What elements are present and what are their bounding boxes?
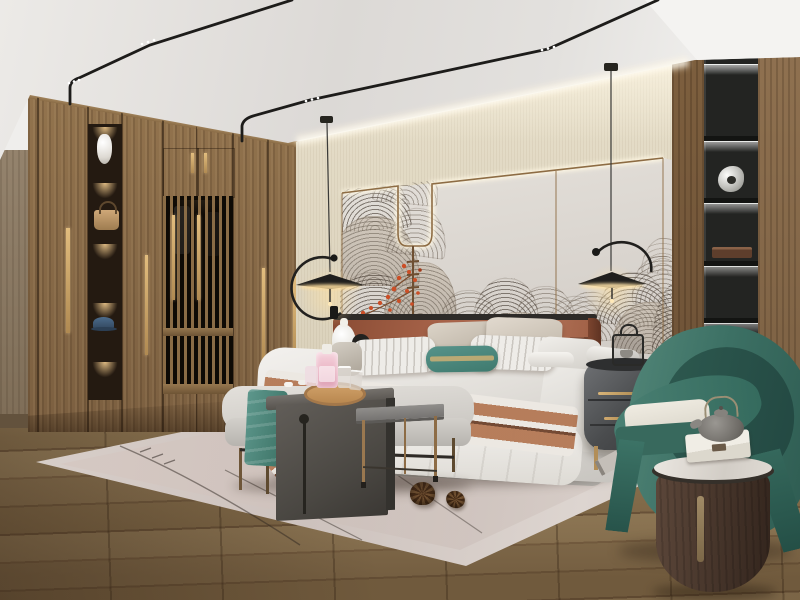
sculpture-hole	[727, 176, 736, 184]
wood-box	[712, 247, 752, 258]
handbag-handle-icon	[99, 201, 117, 214]
left-wall-panel	[0, 150, 30, 428]
lattice-handle	[172, 215, 175, 300]
gourd-lamp-neck	[340, 318, 348, 327]
blue-cap-brim	[91, 327, 117, 331]
headboard-top-rail	[333, 314, 597, 320]
metal-table-foot	[361, 482, 366, 488]
cabinet-handle	[204, 153, 207, 173]
perfume-label	[319, 366, 335, 382]
metal-table-foot	[433, 476, 438, 482]
metal-table-leg	[404, 418, 406, 474]
drum-table-notch	[697, 496, 704, 562]
striped-pillow-left	[351, 336, 437, 376]
bench-tag	[284, 382, 293, 387]
shelf-led	[704, 141, 760, 152]
gift-box-label	[712, 443, 727, 451]
lantern-handle	[620, 324, 638, 336]
left-wall-baseboard	[0, 414, 30, 428]
metal-table-leg	[434, 416, 437, 478]
lattice-bottom-rail	[163, 384, 233, 394]
wardrobe-handle	[262, 268, 265, 364]
lattice-handle	[197, 215, 200, 300]
shelf-led	[704, 266, 760, 277]
white-vase	[97, 134, 112, 164]
wardrobe-handle	[145, 255, 148, 355]
bench-leg	[239, 448, 242, 490]
cabinet-handle	[191, 153, 194, 173]
wardrobe-top-cabinets	[163, 148, 235, 198]
arch-table-slot	[303, 422, 306, 514]
shelf-led	[704, 64, 760, 75]
teapot-lid	[714, 409, 728, 417]
teapot-body	[698, 414, 744, 442]
wardrobe-handle	[66, 228, 70, 333]
glass-cup	[349, 370, 363, 391]
display-niche-5	[90, 362, 120, 398]
lattice-mid-rail	[163, 328, 233, 336]
bedroom-photo	[0, 0, 800, 600]
bolster-pillow	[528, 352, 574, 367]
shelf-led	[704, 203, 760, 214]
teapot-knob	[719, 406, 723, 410]
metal-table-leg	[362, 420, 365, 484]
perfume-cap	[322, 344, 332, 354]
display-niche-3	[90, 244, 120, 297]
lantern-cup	[620, 350, 633, 358]
small-flask	[305, 366, 318, 386]
